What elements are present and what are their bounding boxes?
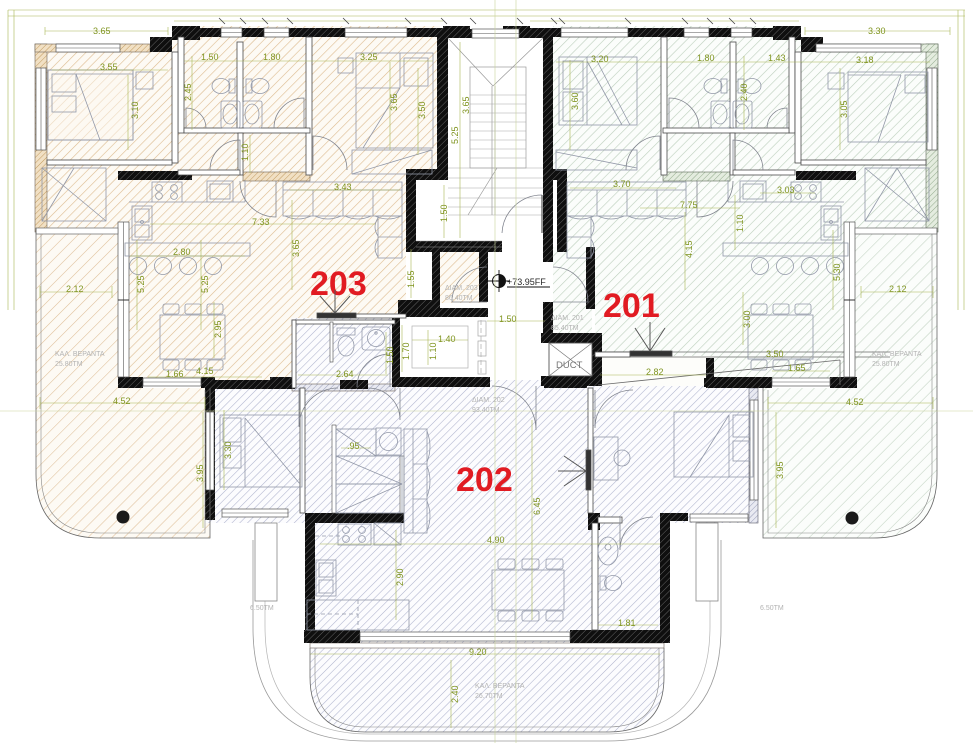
svg-text:2.40: 2.40 [450, 685, 460, 703]
svg-text:203: 203 [310, 265, 367, 303]
svg-text:6.50ΤΜ: 6.50ΤΜ [760, 605, 784, 612]
svg-text:25.80ΤΜ: 25.80ΤΜ [55, 361, 83, 368]
svg-text:1.55: 1.55 [406, 270, 416, 288]
svg-text:3.00: 3.00 [742, 310, 752, 328]
svg-text:1.10: 1.10 [240, 143, 250, 161]
svg-text:1.81: 1.81 [618, 618, 636, 628]
svg-text:7.33: 7.33 [252, 217, 270, 227]
svg-text:4.52: 4.52 [846, 397, 864, 407]
svg-text:4.52: 4.52 [113, 396, 131, 406]
svg-text:3.43: 3.43 [334, 182, 352, 192]
svg-text:1.10: 1.10 [428, 342, 438, 360]
svg-text:ΚΑΛ. ΒΕΡΑΝΤΑ: ΚΑΛ. ΒΕΡΑΝΤΑ [872, 351, 922, 358]
svg-text:5.25: 5.25 [200, 275, 210, 293]
svg-text:25.80ΤΜ: 25.80ΤΜ [872, 361, 900, 368]
svg-text:6.45: 6.45 [532, 497, 542, 515]
svg-text:5.30: 5.30 [832, 263, 842, 281]
svg-text:ΔΙΑΜ. 202: ΔΙΑΜ. 202 [472, 397, 505, 404]
svg-text:3.20: 3.20 [591, 54, 609, 64]
svg-text:1.50: 1.50 [439, 204, 449, 222]
svg-text:ΚΑΛ. ΒΕΡΑΝΤΑ: ΚΑΛ. ΒΕΡΑΝΤΑ [475, 683, 525, 690]
svg-text:26.70ΤΜ: 26.70ΤΜ [475, 693, 503, 700]
svg-text:5.25: 5.25 [450, 126, 460, 144]
svg-text:ΔΙΑΜ. 203: ΔΙΑΜ. 203 [445, 285, 478, 292]
svg-text:2.12: 2.12 [66, 284, 84, 294]
svg-text:7.75: 7.75 [680, 200, 698, 210]
svg-text:86.40ΤΜ: 86.40ΤΜ [445, 295, 473, 302]
svg-text:2.12: 2.12 [889, 284, 907, 294]
svg-text:3.30: 3.30 [868, 26, 886, 36]
svg-text:1.10: 1.10 [735, 214, 745, 232]
svg-text:1.80: 1.80 [263, 52, 281, 62]
svg-text:3.65: 3.65 [93, 26, 111, 36]
svg-text:1.80: 1.80 [697, 53, 715, 63]
svg-text:3.50: 3.50 [766, 349, 784, 359]
svg-text:2.80: 2.80 [173, 247, 191, 257]
svg-text:1.65: 1.65 [788, 363, 806, 373]
svg-text:1.40: 1.40 [438, 334, 456, 344]
svg-text:3.65: 3.65 [291, 239, 301, 257]
svg-text:+73.95FF: +73.95FF [507, 277, 546, 287]
svg-text:3.03: 3.03 [777, 185, 795, 195]
svg-text:3.65: 3.65 [389, 93, 399, 111]
svg-text:.95: .95 [347, 441, 360, 451]
svg-text:4.90: 4.90 [487, 535, 505, 545]
svg-text:1.50: 1.50 [499, 314, 517, 324]
svg-text:85.40ΤΜ: 85.40ΤΜ [551, 325, 579, 332]
svg-text:2.45: 2.45 [183, 83, 193, 101]
svg-text:3.25: 3.25 [360, 52, 378, 62]
svg-text:202: 202 [456, 461, 513, 499]
svg-text:1.66: 1.66 [166, 369, 184, 379]
svg-text:93.40ΤΜ: 93.40ΤΜ [472, 407, 500, 414]
svg-text:1.50: 1.50 [385, 346, 395, 364]
svg-text:201: 201 [603, 287, 660, 325]
svg-text:DUCT: DUCT [556, 360, 583, 371]
svg-text:ΚΑΛ. ΒΕΡΑΝΤΑ: ΚΑΛ. ΒΕΡΑΝΤΑ [55, 351, 105, 358]
svg-text:3.70: 3.70 [613, 179, 631, 189]
svg-text:2.95: 2.95 [213, 320, 223, 338]
svg-text:2.64: 2.64 [336, 369, 354, 379]
svg-text:9.20: 9.20 [469, 647, 487, 657]
svg-text:3.10: 3.10 [130, 101, 140, 119]
svg-text:ΔΙΑΜ. 201: ΔΙΑΜ. 201 [551, 315, 584, 322]
svg-text:3.05: 3.05 [839, 100, 849, 118]
svg-text:1.43: 1.43 [768, 53, 786, 63]
svg-text:4.15: 4.15 [196, 366, 214, 376]
svg-text:2.40: 2.40 [739, 83, 749, 101]
svg-text:3.95: 3.95 [195, 464, 205, 482]
svg-text:3.18: 3.18 [856, 55, 874, 65]
svg-text:3.95: 3.95 [775, 461, 785, 479]
svg-text:2.90: 2.90 [395, 568, 405, 586]
svg-text:1.50: 1.50 [201, 52, 219, 62]
svg-text:3.55: 3.55 [100, 62, 118, 72]
svg-text:6.50ΤΜ: 6.50ΤΜ [250, 605, 274, 612]
svg-text:1.70: 1.70 [401, 342, 411, 360]
svg-text:3.65: 3.65 [461, 96, 471, 114]
svg-text:4.15: 4.15 [684, 240, 694, 258]
svg-text:5.25: 5.25 [136, 275, 146, 293]
svg-text:3.50: 3.50 [417, 101, 427, 119]
svg-text:2.82: 2.82 [646, 367, 664, 377]
svg-text:3.30: 3.30 [223, 441, 233, 459]
svg-text:3.60: 3.60 [570, 92, 580, 110]
